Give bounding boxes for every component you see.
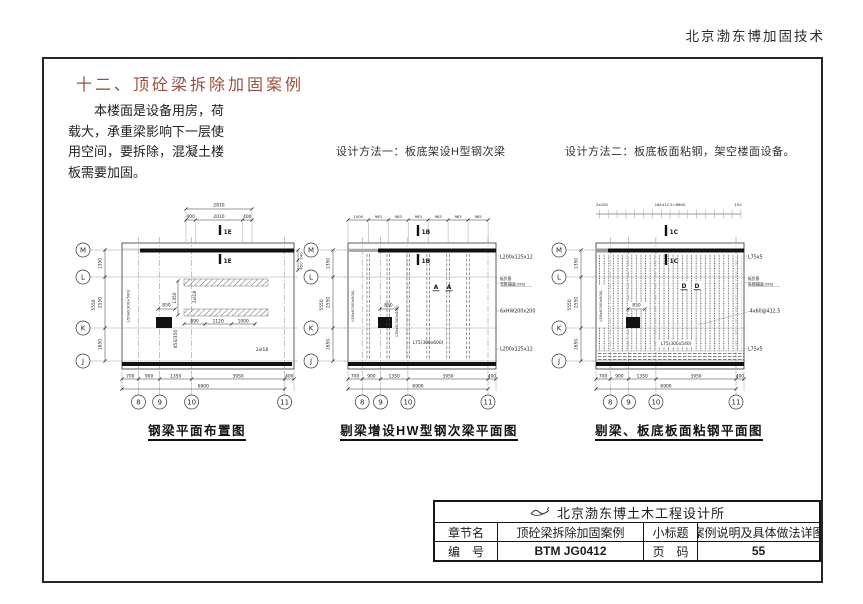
- section-mark-label: 1C: [670, 229, 679, 236]
- annotation-label: -4x60@412.5: [748, 309, 780, 315]
- content-frame: 十二、顶砼梁拆除加固案例 本楼面是设备用房，荷 载大，承重梁影响下一层使 用空间…: [42, 57, 823, 583]
- grid-bubble-11: 11: [484, 399, 493, 407]
- dim-total-label: 6900: [198, 383, 209, 389]
- section-mark-label: 1C: [670, 258, 679, 265]
- top-dimension-chain: 2x150 16x412.5=6600 150: [596, 202, 742, 219]
- section-mark-label: 1B: [422, 229, 431, 236]
- dim-label: 983: [395, 214, 403, 219]
- section-marks: 1B 1B A A: [417, 225, 453, 291]
- page-number: 55: [697, 542, 819, 560]
- axis-bubble-k: K: [81, 325, 86, 333]
- grid-bubble-8: 8: [360, 399, 364, 407]
- dim-label: 1350: [389, 373, 400, 379]
- angle-steel-label: L50x6(300x500): [394, 305, 399, 337]
- drawing-caption: 钢梁平面布置图: [148, 424, 246, 441]
- beam-size-label: L75(300x600): [413, 340, 444, 346]
- dim-label: 1350: [172, 292, 178, 303]
- angle-steel-label: L50x6(300x500): [350, 290, 355, 322]
- axis-bubble-m: M: [80, 247, 86, 255]
- dim-label: 850: [632, 303, 641, 309]
- axis-grid-left: M L K J 1350 2550 1650 5550: [76, 243, 118, 368]
- grid-bubble-11: 11: [280, 399, 289, 407]
- annotation-label: L75x5: [748, 347, 763, 353]
- chapter-value: 顶砼梁拆除加固案例: [497, 523, 643, 541]
- grid-bubble-9: 9: [378, 399, 382, 407]
- drawing-2-canvas: 1000 983 983 983 983 983 985 1B 1B A A: [300, 193, 552, 415]
- dim-label: 983: [375, 214, 383, 219]
- dim-label: 700: [126, 373, 135, 379]
- section-mark-label: 1E: [224, 229, 232, 236]
- drawing-hw-subbeam-plan: 1000 983 983 983 983 983 985 1B 1B A A: [300, 193, 558, 440]
- number-value: BTM JG0412: [497, 542, 643, 560]
- detail-mark-label: A: [434, 284, 439, 291]
- drawing-caption: 剔梁、板底板面粘钢平面图: [595, 424, 763, 441]
- dim-label: 1120: [213, 318, 224, 324]
- right-annotations: L200x125x12 板负筋 弯筋锚固(350) 6xHW200x200 L2…: [496, 255, 535, 353]
- dim-total-label: 5550: [91, 299, 97, 310]
- dim-label: 983: [454, 214, 462, 219]
- dim-label: 700: [351, 373, 360, 379]
- annotation-label: L75x5: [748, 255, 763, 261]
- dim-label: 2010: [213, 214, 224, 220]
- annotation-label: L200x125x12: [500, 347, 533, 353]
- right-annotations: L75x5 板负筋 粘钢锚固(350) -4x60@412.5 L75x5: [744, 255, 780, 353]
- dim-label: 983: [415, 214, 423, 219]
- drawing-3-canvas: 2x150 16x412.5=6600 150 1C 1C D D: [548, 193, 802, 415]
- institute-name: 北京渤东博土木工程设计所: [557, 503, 725, 522]
- drawing-steel-beam-plan: M L K J 1350 2550 1650 5550: [72, 193, 322, 440]
- dim-label: 890: [190, 318, 199, 324]
- drawing-caption-wrap: 剔梁、板底板面粘钢平面图: [548, 420, 810, 440]
- detail-mark-label: A: [447, 284, 452, 291]
- annotation-label: 粘钢锚固(350): [748, 282, 774, 287]
- grid-bubble-8: 8: [136, 399, 140, 407]
- dim-label: 400: [187, 214, 196, 220]
- annotation-label: 板负筋: [748, 276, 760, 281]
- dim-label: 1000: [238, 318, 249, 324]
- detail-mark-label: D: [682, 283, 687, 290]
- dim-label: 1350: [170, 373, 181, 379]
- annotation-label: 板负筋: [500, 276, 512, 281]
- dim-label: 900: [367, 373, 376, 379]
- grid-bubble-9: 9: [157, 399, 161, 407]
- dim-label: 1650: [98, 339, 104, 350]
- dim-label: 3950: [442, 373, 453, 379]
- page-label: 页 码: [643, 542, 697, 560]
- beam-size-label: 2xI18: [192, 291, 198, 303]
- title-block-row: 章节名 顶砼梁拆除加固案例 小标题 案例说明及具体做法详图: [435, 523, 819, 541]
- chapter-label: 章节名: [435, 523, 497, 541]
- number-label: 编 号: [435, 542, 497, 560]
- annotation-label: 弯筋锚固(350): [500, 282, 526, 287]
- dim-label: 850/350: [173, 330, 179, 348]
- dim-label: 2550: [98, 297, 104, 308]
- dim-label: 850: [162, 303, 171, 309]
- doc-header: 北京渤东博加固技术: [686, 25, 826, 45]
- dim-total-label: 6900: [412, 383, 423, 389]
- detail-mark-label: D: [695, 283, 700, 290]
- axis-bubble-j: J: [81, 358, 84, 366]
- drawing-bonded-plate-plan: 2x150 16x412.5=6600 150 1C 1C D D: [548, 193, 810, 440]
- section-mark-label: 1E: [224, 258, 232, 265]
- intro-line: 载大，承重梁影响下一层使: [68, 122, 253, 143]
- annotation-label: L200x125x12: [500, 255, 533, 261]
- title-block-org-row: 北京渤东博土木工程设计所: [435, 502, 819, 523]
- grid-bubble-10: 10: [403, 399, 412, 407]
- drawing-caption: 剔梁增设HW型钢次梁平面图: [340, 424, 518, 441]
- top-dimension-chain: 2810 400 2010 400: [184, 203, 253, 222]
- subtitle-value: 案例说明及具体做法详图: [697, 523, 819, 541]
- annotation-label: 6xHW200x200: [500, 309, 535, 315]
- dim-label: 150: [734, 202, 742, 207]
- design-method-2: 设计方法二：板底板面粘钢，架空楼面设备。: [565, 143, 795, 159]
- angle-steel-label: L50x6(300+500): [126, 289, 131, 322]
- intro-line: 本楼面是设备用房，荷: [68, 101, 253, 122]
- dim-label: 1000: [353, 214, 363, 219]
- intro-paragraph: 本楼面是设备用房，荷 载大，承重梁影响下一层使 用空间，要拆除，混凝土楼 板需要…: [68, 101, 253, 183]
- dim-label: 16x412.5=6600: [655, 202, 686, 207]
- top-dimension-chain: 1000 983 983 983 983 983 985: [346, 214, 489, 222]
- subtitle-label: 小标题: [643, 523, 697, 541]
- interior-dimensions: 1350 2xI18 890 1120 1000 850 850/350 2xI…: [126, 248, 304, 353]
- dim-label: 1350: [98, 258, 104, 269]
- grid-bubble-10: 10: [187, 399, 196, 407]
- title-block: 北京渤东博土木工程设计所 章节名 顶砼梁拆除加固案例 小标题 案例说明及具体做法…: [433, 500, 821, 562]
- beam-size-label: L75(300x540): [661, 341, 692, 347]
- design-method-1: 设计方法一：板底架设H型钢次梁: [336, 143, 505, 159]
- dim-label: 400: [243, 214, 252, 220]
- bottom-dimension-chain: 700 900 1350 3950 400 6900 8 9 10 11: [346, 371, 497, 409]
- bottom-dimension-chain: 700 900 1350 3950 400 6900 8 9 10 11: [120, 371, 295, 409]
- dim-label: 3950: [233, 373, 244, 379]
- drawing-caption-wrap: 剔梁增设HW型钢次梁平面图: [300, 420, 558, 440]
- axis-bubble-l: L: [81, 274, 85, 282]
- dim-label: 400: [488, 373, 497, 379]
- section-marks: 1E 1E: [219, 225, 232, 265]
- intro-line: 用空间，要拆除，混凝土楼: [68, 142, 253, 163]
- dim-label: 2x150: [596, 202, 608, 207]
- section-mark-label: 1B: [422, 258, 431, 265]
- dim-label: 983: [435, 214, 443, 219]
- dim-label: 985: [474, 214, 482, 219]
- plan-linework: [344, 222, 498, 375]
- intro-line: 板需要加固。: [68, 163, 253, 184]
- institute-logo-icon: [529, 506, 551, 518]
- dim-label: 850: [384, 303, 393, 309]
- dim-label: 900: [145, 373, 154, 379]
- document-page: 北京渤东博加固技术 十二、顶砼梁拆除加固案例 本楼面是设备用房，荷 载大，承重梁…: [0, 0, 863, 604]
- drawing-1-canvas: M L K J 1350 2550 1650 5550: [72, 193, 316, 415]
- section-title: 十二、顶砼梁拆除加固案例: [76, 71, 304, 95]
- angle-steel-label: L50x6(300x500): [598, 290, 603, 322]
- title-block-row: 编 号 BTM JG0412 页 码 55: [435, 541, 819, 560]
- plan-linework: [118, 211, 298, 375]
- dim-label: 400: [285, 373, 294, 379]
- dim-total-label: 2810: [213, 203, 224, 209]
- drawing-caption-wrap: 钢梁平面布置图: [72, 420, 322, 440]
- beam-size-label: 2xI18: [256, 347, 268, 353]
